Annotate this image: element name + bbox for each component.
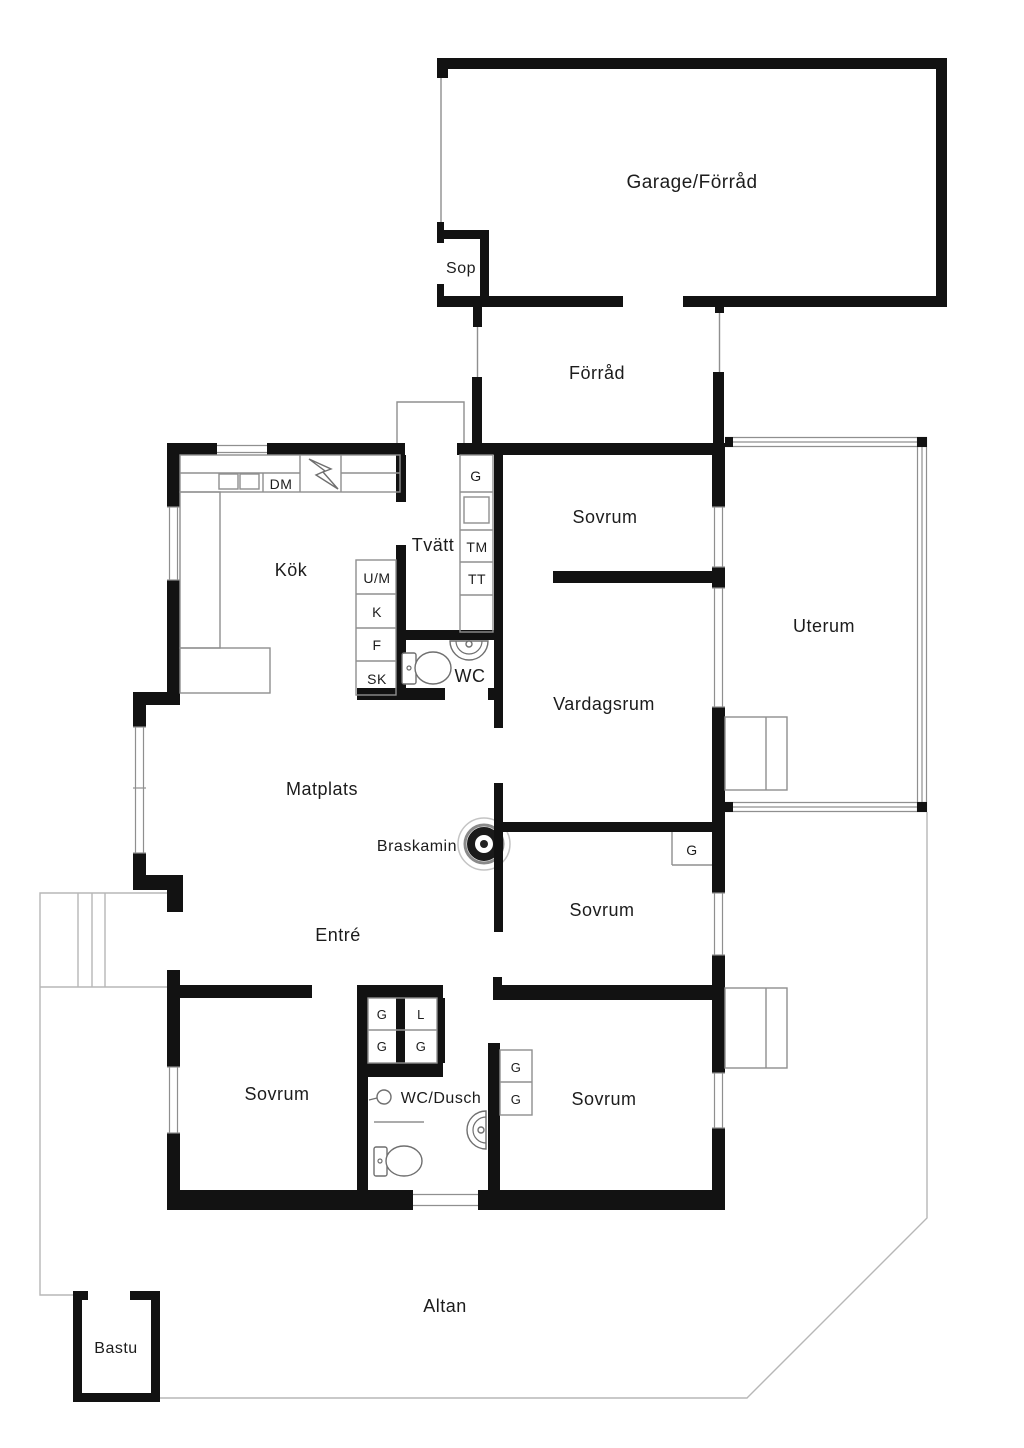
toilet-icon xyxy=(402,652,451,684)
room-label-sop: Sop xyxy=(446,260,476,277)
cabinet-label-sovrum-br-g1: G xyxy=(511,1060,522,1075)
floor-plan-svg: Garage/Förråd Sop Förråd Kök Tvätt WC So… xyxy=(0,0,1024,1448)
cabinet-label-hall-l: L xyxy=(417,1007,425,1022)
cabinet-label-hall-g1: G xyxy=(377,1007,388,1022)
room-label-matplats: Matplats xyxy=(286,779,358,799)
room-label-wc: WC xyxy=(455,666,486,686)
feature-label-braskamin: Braskamin xyxy=(377,838,457,855)
room-label-entre: Entré xyxy=(315,925,361,945)
cabinet-label-f: F xyxy=(372,637,381,653)
cabinet-label-sovrum-mid-g: G xyxy=(686,842,697,858)
room-label-sovrum-bottom-left: Sovrum xyxy=(244,1084,309,1104)
room-label-sovrum-top: Sovrum xyxy=(572,507,637,527)
cabinet-label-hall-g3: G xyxy=(416,1039,427,1054)
cabinet-label-sk: SK xyxy=(367,671,387,687)
toilet-icon xyxy=(374,1146,422,1176)
cabinet-label-dm: DM xyxy=(270,476,293,492)
room-label-kok: Kök xyxy=(275,560,308,580)
room-label-sovrum-mid: Sovrum xyxy=(569,900,634,920)
cabinet-label-hall-g2: G xyxy=(377,1039,388,1054)
room-label-forrad: Förråd xyxy=(569,363,625,383)
background xyxy=(0,0,1024,1448)
room-label-tvatt: Tvätt xyxy=(412,535,455,555)
cabinet-label-k: K xyxy=(372,604,382,620)
cabinet-label-sovrum-br-g2: G xyxy=(511,1092,522,1107)
room-label-vardagsrum: Vardagsrum xyxy=(553,694,655,714)
cabinet-label-tt: TT xyxy=(468,571,486,587)
cabinet-label-tm: TM xyxy=(466,539,487,555)
room-label-bastu: Bastu xyxy=(94,1340,137,1357)
room-label-garage: Garage/Förråd xyxy=(626,172,757,193)
room-label-sovrum-bottom-right: Sovrum xyxy=(571,1089,636,1109)
cabinet-label-um: U/M xyxy=(363,570,390,586)
room-label-wc-dusch: WC/Dusch xyxy=(401,1090,481,1107)
cabinet-label-tvatt-g: G xyxy=(470,468,481,484)
room-label-altan: Altan xyxy=(423,1296,467,1316)
floor-plan-page: Garage/Förråd Sop Förråd Kök Tvätt WC So… xyxy=(0,0,1024,1448)
room-label-uterum: Uterum xyxy=(793,616,855,636)
